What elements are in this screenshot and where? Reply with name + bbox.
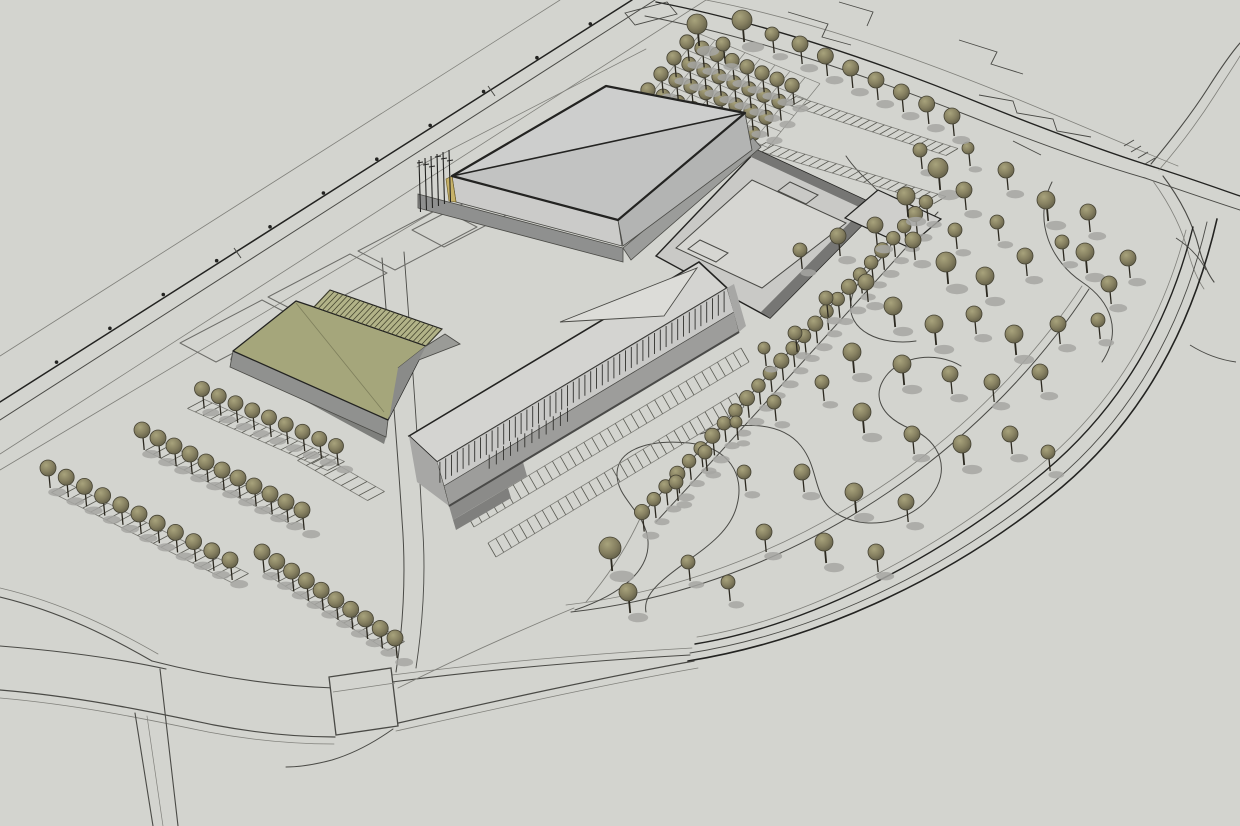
tree-shadow [687, 61, 703, 68]
tree [868, 72, 884, 88]
tree [819, 291, 833, 305]
tree [752, 379, 766, 393]
tree [372, 620, 388, 636]
tree-shadow [1062, 261, 1078, 268]
tree-shadow [254, 506, 272, 514]
tree [808, 316, 823, 331]
tree-shadow [713, 455, 730, 463]
tree [230, 470, 246, 486]
tree [343, 601, 359, 617]
tree [262, 410, 277, 425]
tree-shadow [997, 241, 1013, 248]
tree [211, 389, 226, 404]
tree-shadow [351, 629, 369, 637]
tree [76, 478, 92, 494]
street-lamp-dot [482, 90, 486, 94]
tree-shadow [985, 297, 1005, 306]
tree [774, 353, 789, 368]
tree-shadow [1040, 392, 1058, 400]
tree [925, 315, 943, 333]
tree-shadow [734, 102, 750, 109]
tree-shadow [690, 480, 705, 487]
tree [815, 375, 829, 389]
tree-shadow [927, 124, 945, 132]
tree [682, 454, 696, 468]
tree [966, 306, 982, 322]
tree [841, 279, 856, 294]
tree-shadow [851, 88, 869, 96]
tree-shadow [824, 563, 844, 572]
tree [942, 366, 958, 382]
tree-shadow [1006, 190, 1024, 198]
tree-shadow [742, 42, 764, 52]
tree-shadow [236, 423, 253, 431]
tree [254, 544, 270, 560]
tree [897, 187, 915, 205]
tree-shadow [174, 466, 192, 474]
tree [619, 583, 637, 601]
tree-shadow [219, 416, 236, 424]
tree-shadow [206, 482, 224, 490]
tree [919, 195, 933, 209]
tree-shadow [674, 77, 690, 84]
tree-shadow [1014, 355, 1034, 364]
tree [166, 438, 182, 454]
tree [149, 515, 165, 531]
tree-shadow [1088, 232, 1106, 240]
tree-shadow [772, 53, 788, 60]
tree-shadow [747, 418, 764, 426]
tree [936, 252, 956, 272]
tree-shadow [852, 373, 872, 382]
tree-shadow [66, 497, 84, 505]
tree [312, 431, 327, 446]
tree [793, 243, 807, 257]
tree [953, 435, 971, 453]
tree-shadow [902, 385, 922, 394]
tree [928, 158, 948, 178]
tree [998, 162, 1014, 178]
tree [705, 428, 720, 443]
tree [182, 446, 198, 462]
tree-shadow [744, 491, 760, 498]
tree [647, 492, 661, 506]
tree-shadow [774, 421, 790, 428]
tree [1076, 243, 1094, 261]
tree-shadow [704, 90, 720, 97]
tree-shadow [816, 343, 833, 351]
tree [944, 108, 960, 124]
tree-shadow [158, 458, 176, 466]
tree-shadow [827, 330, 842, 337]
tree [198, 454, 214, 470]
street-lamp-dot [428, 124, 432, 128]
tree [698, 445, 712, 459]
tree-shadow [303, 451, 320, 459]
tree-shadow [719, 96, 735, 103]
tree-shadow [676, 501, 692, 508]
tree [58, 469, 74, 485]
tree-shadow [689, 84, 705, 91]
tree [680, 35, 694, 49]
tree-shadow [962, 465, 982, 474]
bridge-deck [329, 668, 398, 735]
tree-shadow [866, 302, 884, 310]
tree [717, 416, 731, 430]
street-lamp-dot [535, 56, 539, 60]
tree-shadow [1046, 221, 1066, 230]
street-lamp-dot [375, 157, 379, 161]
tree-shadow [902, 112, 920, 120]
tree-shadow [883, 270, 900, 278]
tree-shadow [286, 522, 304, 530]
tree-shadow [628, 613, 648, 622]
tree-shadow [1048, 471, 1064, 478]
tree [767, 395, 781, 409]
tree-shadow [912, 454, 930, 462]
tree [278, 417, 293, 432]
tree [669, 475, 683, 489]
tree [681, 555, 695, 569]
tree [246, 478, 262, 494]
tree [919, 96, 935, 112]
tree [868, 544, 884, 560]
tree-shadow [139, 534, 157, 542]
tree-shadow [262, 572, 280, 580]
tree [150, 430, 166, 446]
tree-shadow [906, 217, 926, 226]
tree-shadow [826, 76, 844, 84]
tree-shadow [336, 620, 354, 628]
tree-shadow [654, 518, 669, 525]
tree-shadow [950, 394, 968, 402]
tree-shadow [212, 571, 230, 579]
tree [687, 14, 707, 34]
tree [730, 416, 742, 428]
tree-shadow [728, 601, 744, 608]
street-lamp-dot [161, 293, 165, 297]
tree-shadow [779, 121, 795, 128]
tree [716, 37, 730, 51]
tree-shadow [764, 552, 782, 560]
tree-shadow [366, 639, 384, 647]
tree [984, 374, 1000, 390]
tree-shadow [906, 522, 924, 530]
tree [1005, 325, 1023, 343]
tree [817, 48, 833, 64]
tree [328, 592, 344, 608]
tree-shadow [1058, 344, 1076, 352]
tree-shadow [822, 401, 838, 408]
tree-shadow [48, 488, 66, 496]
tree-shadow [1025, 276, 1043, 284]
tree [40, 460, 56, 476]
tree [913, 143, 927, 157]
tree-shadow [876, 572, 894, 580]
tree [756, 524, 772, 540]
tree-shadow [782, 380, 799, 388]
tree-shadow [800, 64, 818, 72]
tree-shadow [749, 108, 765, 115]
tree [1017, 248, 1033, 264]
tree-shadow [222, 490, 240, 498]
tree [295, 424, 310, 439]
tree-shadow [964, 210, 982, 218]
tree-shadow [838, 256, 856, 264]
tree [845, 483, 863, 501]
tree-shadow [765, 366, 778, 372]
tree-shadow [142, 450, 160, 458]
tree-shadow [697, 46, 719, 56]
tree-shadow [320, 458, 337, 466]
tree [765, 27, 779, 41]
tree-shadow [747, 86, 763, 93]
tree-shadow [395, 658, 413, 666]
tree-shadow [202, 409, 219, 417]
street-lamp-dot [268, 225, 272, 229]
tree [214, 462, 230, 478]
tree-shadow [302, 530, 320, 538]
tree-shadow [1109, 304, 1127, 312]
tree [990, 215, 1004, 229]
tree-shadow [802, 492, 820, 500]
site-model-canvas [0, 0, 1240, 826]
tree [95, 488, 111, 504]
tree [820, 304, 834, 318]
tree-shadow [762, 92, 778, 99]
tree-shadow [705, 471, 721, 478]
tree [843, 60, 859, 76]
tree-shadow [702, 68, 718, 75]
tree [222, 552, 238, 568]
tree [1037, 191, 1055, 209]
tree [667, 51, 681, 65]
tree [245, 403, 260, 418]
tree [893, 355, 911, 373]
tree [905, 232, 921, 248]
tree [1055, 235, 1069, 249]
tree-shadow [732, 80, 748, 87]
tree-shadow [85, 506, 103, 514]
tree-shadow [1010, 454, 1028, 462]
tree [758, 342, 770, 354]
street-lamp-dot [55, 360, 59, 364]
tree [732, 10, 752, 30]
tree [794, 464, 810, 480]
tree-shadow [253, 430, 270, 438]
tree-shadow [717, 74, 733, 81]
tree [1041, 445, 1055, 459]
tree [599, 537, 621, 559]
tree-shadow [849, 306, 866, 314]
tree [737, 465, 751, 479]
tree [195, 382, 210, 397]
tree [1091, 313, 1105, 327]
tree [654, 67, 668, 81]
tree-shadow [927, 221, 942, 228]
street-lamp-dot [215, 259, 219, 263]
tree-shadow [854, 513, 874, 522]
tree-shadow [876, 100, 894, 108]
tree [867, 217, 883, 233]
tree-shadow [286, 444, 303, 452]
tree [770, 72, 784, 86]
tree-shadow [875, 245, 893, 253]
tree-shadow [777, 99, 793, 106]
tree-shadow [946, 284, 968, 294]
tree-shadow [121, 525, 139, 533]
tree-shadow [792, 105, 808, 112]
tree [898, 494, 914, 510]
tree [830, 228, 846, 244]
tree-shadow [974, 334, 992, 342]
tree [893, 84, 909, 100]
tree-shadow [800, 269, 816, 276]
tree-shadow [992, 402, 1010, 410]
tree-shadow [678, 493, 695, 501]
tree-shadow [913, 260, 931, 268]
tree [1032, 364, 1048, 380]
tree [113, 497, 129, 513]
tree-shadow [321, 610, 339, 618]
tree-shadow [934, 345, 954, 354]
tree-shadow [642, 532, 659, 540]
tree [755, 66, 769, 80]
tree [262, 486, 278, 502]
tree-shadow [307, 601, 325, 609]
tree [186, 534, 202, 550]
tree [886, 231, 900, 245]
tree-shadow [688, 581, 704, 588]
model-viewport[interactable] [0, 0, 1240, 826]
tree [167, 524, 183, 540]
tree [1101, 276, 1117, 292]
tree-shadow [610, 571, 635, 582]
tree-shadow [723, 63, 739, 70]
tree-shadow [277, 582, 295, 590]
tree-shadow [190, 474, 208, 482]
tree-shadow [893, 327, 913, 336]
tree [739, 390, 754, 405]
tree-shadow [194, 562, 212, 570]
tree [948, 223, 962, 237]
tree [853, 403, 871, 421]
tree [204, 543, 220, 559]
tree [294, 502, 310, 518]
tree-shadow [230, 580, 248, 588]
tree-shadow [766, 137, 782, 144]
tree [284, 563, 300, 579]
tree-shadow [793, 367, 808, 374]
tree [843, 343, 861, 361]
tree-shadow [894, 257, 909, 264]
tree [278, 494, 294, 510]
tree [976, 267, 994, 285]
tree-shadow [764, 115, 780, 122]
tree [1002, 426, 1018, 442]
tree [815, 533, 833, 551]
tree [721, 575, 735, 589]
tree [864, 256, 878, 270]
tree [313, 582, 329, 598]
tree-shadow [751, 131, 767, 138]
tree-shadow [269, 437, 286, 445]
tree [884, 297, 902, 315]
tree-shadow [795, 352, 811, 359]
tree-shadow [292, 591, 310, 599]
tree-shadow [336, 466, 353, 474]
tree-shadow [1098, 339, 1114, 346]
tree [788, 326, 802, 340]
tree [1050, 316, 1066, 332]
tree-shadow [270, 514, 288, 522]
tree [740, 60, 754, 74]
tree-shadow [103, 516, 121, 524]
tree [357, 611, 373, 627]
tree-shadow [862, 433, 882, 442]
tree [131, 506, 147, 522]
tree-shadow [969, 166, 982, 172]
street-lamp-dot [108, 327, 112, 331]
tree [634, 504, 649, 519]
street-lamp-dot [322, 191, 326, 195]
road-bridge [329, 668, 398, 735]
tree [956, 182, 972, 198]
tree [269, 554, 285, 570]
tree [228, 396, 243, 411]
tree [387, 630, 403, 646]
tree-shadow [157, 543, 175, 551]
tree-shadow [1128, 278, 1146, 286]
tree-shadow [826, 317, 842, 324]
tree [134, 422, 150, 438]
tree [298, 573, 314, 589]
tree [904, 426, 920, 442]
tree-shadow [952, 136, 970, 144]
tree [785, 78, 799, 92]
tree-shadow [955, 249, 971, 256]
tree [1120, 250, 1136, 266]
tree-shadow [176, 552, 194, 560]
tree [329, 439, 344, 454]
street-lamp-dot [589, 22, 593, 26]
tree-shadow [737, 440, 750, 446]
tree [792, 36, 808, 52]
tree [729, 404, 743, 418]
tree [1080, 204, 1096, 220]
tree [858, 274, 874, 290]
tree-shadow [380, 648, 398, 656]
tree-shadow [238, 498, 256, 506]
